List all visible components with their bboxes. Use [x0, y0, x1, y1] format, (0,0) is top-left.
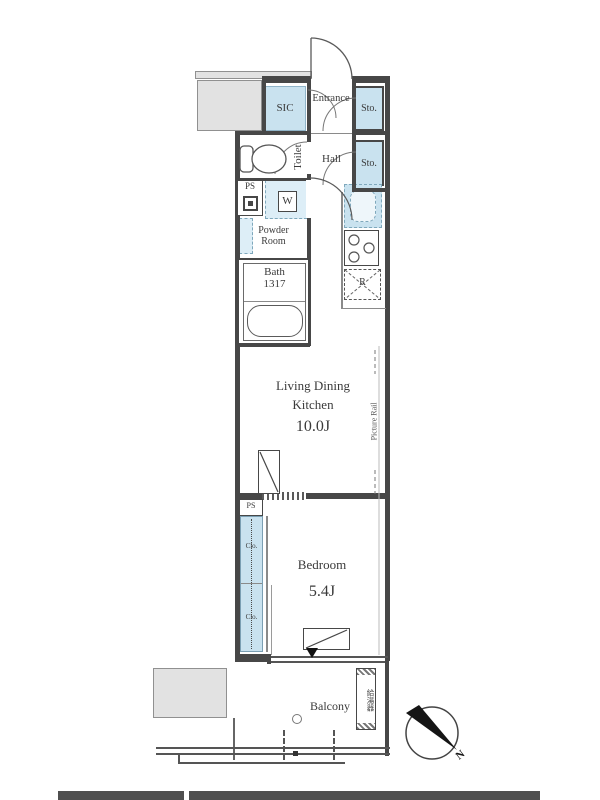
floorplan: N SIC Entrance Sto. Sto. Toilet Hall PS … — [0, 0, 600, 800]
corridor-door-arc — [310, 178, 352, 220]
ldk-furniture-diagonal — [260, 452, 278, 492]
label-toilet: Toilet — [292, 135, 304, 179]
label-ldk-line1: Living Dining — [276, 378, 350, 393]
label-water-heater: 給湯器 — [358, 677, 374, 723]
label-bedroom-size: 5.4J — [282, 583, 362, 601]
label-hall: Hall — [311, 153, 352, 165]
label-sto-entrance: Sto. — [354, 103, 384, 114]
label-bath: Bath 1317 — [243, 266, 306, 290]
toilet-fixture-icon — [240, 145, 286, 173]
label-fridge: R — [344, 277, 381, 288]
label-ps-upper: PS — [237, 182, 263, 192]
label-bedroom: Bedroom — [282, 558, 362, 572]
label-sto-hall: Sto. — [354, 158, 384, 169]
label-entrance: Entrance — [307, 93, 355, 105]
stove-burners-icon — [349, 235, 374, 262]
label-ldk-line2: Kitchen — [292, 397, 333, 412]
label-picture-rail: Picture Rail — [371, 376, 380, 466]
label-washer: W — [278, 195, 297, 207]
bedroom-furniture-diagonal — [306, 630, 347, 648]
label-powder-room: Powder Room — [240, 225, 307, 247]
label-bath-name: Bath — [264, 266, 285, 278]
compass-north-label: N — [454, 748, 468, 762]
entrance-door-arc — [311, 38, 352, 79]
label-ps-lower: PS — [239, 502, 263, 511]
label-sic: SIC — [264, 102, 306, 114]
window-marker-triangle — [306, 648, 318, 658]
label-ldk: Living Dining Kitchen 10.0J — [243, 377, 383, 438]
compass-icon: N — [406, 705, 467, 762]
label-powder-line2: Room — [261, 236, 285, 247]
label-ldk-size: 10.0J — [296, 418, 330, 435]
label-powder-line1: Powder — [258, 225, 289, 236]
label-clo-lower: Clo. — [240, 614, 263, 622]
label-clo-upper: Clo. — [240, 543, 263, 551]
label-bath-size: 1317 — [264, 278, 286, 290]
